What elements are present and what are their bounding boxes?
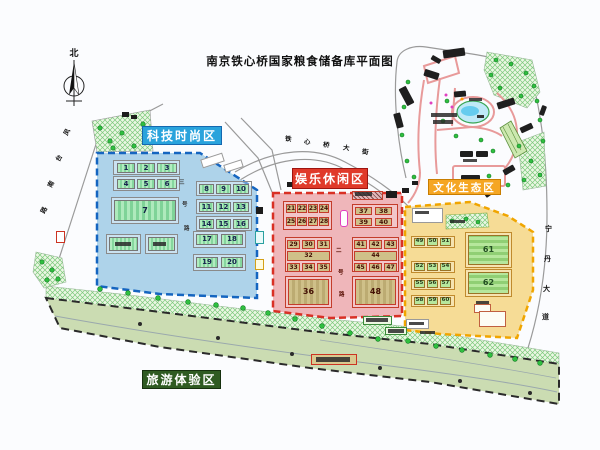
building-7: 7	[114, 200, 176, 221]
tiny-text-mark	[476, 301, 489, 304]
tiny-text-mark	[316, 357, 350, 362]
building-57: 57	[440, 280, 451, 288]
building-47: 47	[384, 263, 397, 272]
building-17: 17	[196, 234, 218, 245]
building-3: 3	[157, 163, 177, 173]
road-label-right_road: 道	[542, 314, 549, 321]
dark-mark	[402, 188, 409, 193]
zone-label-culture: 文化生态区	[428, 179, 501, 195]
building-20: 20	[221, 257, 243, 268]
compass-icon	[64, 60, 84, 106]
building-18: 18	[221, 234, 243, 245]
building-26: 26	[297, 217, 307, 226]
building-16: 16	[233, 219, 249, 229]
road-label-leisure_inner: 号	[338, 271, 344, 277]
building-61: 61	[468, 235, 509, 265]
road-label-top_street: 铁	[285, 136, 292, 143]
building-9: 9	[216, 184, 231, 194]
building-2: 2	[137, 163, 155, 173]
map-structure	[340, 210, 348, 227]
site-building	[460, 151, 473, 157]
map-structure	[255, 259, 264, 270]
pond	[457, 101, 489, 123]
building-62: 62	[468, 272, 509, 294]
tiny-text-mark	[409, 322, 424, 325]
building-54: 54	[440, 263, 451, 271]
building-53: 53	[427, 263, 438, 271]
road-label-right_road: 宁	[545, 226, 552, 233]
building-10: 10	[233, 184, 249, 194]
map-structure	[255, 231, 264, 244]
building-44: 44	[354, 251, 397, 261]
tiny-text-mark	[388, 329, 404, 333]
site-building	[476, 151, 488, 157]
building-13: 13	[233, 202, 249, 212]
zone-label-tourism: 旅游体验区	[142, 370, 221, 389]
building	[386, 191, 397, 198]
zone-label-leisure: 娱乐休闲区	[292, 168, 368, 189]
building-6: 6	[157, 179, 177, 189]
building-14: 14	[199, 219, 214, 229]
dark-mark	[412, 181, 418, 185]
building-37: 37	[355, 207, 372, 215]
tiny-text-mark	[463, 159, 477, 162]
building-55: 55	[414, 280, 425, 288]
building-19: 19	[196, 257, 218, 268]
building-15: 15	[216, 219, 231, 229]
building-41: 41	[354, 240, 367, 249]
building-30: 30	[302, 240, 315, 249]
building-11: 11	[199, 202, 214, 212]
building-33: 33	[287, 263, 300, 272]
building-22: 22	[297, 204, 307, 213]
road-label-right_road: 丹	[544, 256, 551, 263]
building-52: 52	[414, 263, 425, 271]
building-43: 43	[384, 240, 397, 249]
road-label-top_street: 心	[304, 139, 311, 146]
dark-mark	[256, 207, 263, 214]
building-56: 56	[427, 280, 438, 288]
building-4: 4	[117, 179, 135, 189]
building-51: 51	[440, 238, 451, 246]
building-46: 46	[369, 263, 382, 272]
building-28: 28	[319, 217, 329, 226]
site-building	[454, 90, 466, 97]
compass-north-label: 北	[66, 46, 82, 59]
building-38: 38	[375, 207, 392, 215]
road-label-tech_inner: 号	[182, 203, 188, 209]
building-27: 27	[308, 217, 318, 226]
building-40: 40	[375, 218, 392, 226]
road-label-tech_inner: 路	[184, 227, 190, 233]
building-60: 60	[440, 297, 451, 305]
map-title: 南京铁心桥国家粮食储备库平面图	[150, 53, 450, 69]
tiny-text-mark	[115, 242, 131, 246]
map-structure	[479, 311, 506, 327]
building-39: 39	[355, 218, 372, 226]
building-21: 21	[286, 204, 296, 213]
tiny-text-mark	[450, 220, 465, 223]
road-label-top_street: 桥	[323, 142, 330, 149]
building-8: 8	[199, 184, 214, 194]
tiny-text-mark	[366, 318, 388, 322]
road-label-leisure_inner: 路	[339, 293, 345, 299]
map-structure	[56, 231, 65, 243]
dark-mark	[122, 112, 129, 117]
building-42: 42	[369, 240, 382, 249]
tiny-text-mark	[433, 120, 453, 124]
tiny-text-mark	[420, 331, 435, 334]
building-35: 35	[317, 263, 330, 272]
road-label-leisure_inner: 二	[336, 249, 342, 255]
building-49: 49	[414, 238, 425, 246]
building-32: 32	[287, 251, 330, 261]
road-label-top_street: 街	[362, 149, 369, 156]
building-5: 5	[137, 179, 155, 189]
zone-label-tech: 科技时尚区	[142, 126, 222, 145]
building-23: 23	[308, 204, 318, 213]
building-31: 31	[317, 240, 330, 249]
road-label-top_street: 大	[343, 145, 350, 152]
building-24: 24	[319, 204, 329, 213]
building-45: 45	[354, 263, 367, 272]
building-50: 50	[427, 238, 438, 246]
building-59: 59	[427, 297, 438, 305]
building-48: 48	[355, 279, 396, 305]
building-1: 1	[117, 163, 135, 173]
tiny-text-mark	[153, 242, 166, 246]
tiny-text-mark	[355, 192, 372, 196]
dark-mark	[131, 115, 137, 119]
road-label-tech_inner: 三	[179, 181, 185, 187]
building-36: 36	[288, 279, 329, 305]
road-label-right_road: 大	[543, 286, 550, 293]
building-34: 34	[302, 263, 315, 272]
building-25: 25	[286, 217, 296, 226]
tiny-text-mark	[431, 113, 457, 117]
building-12: 12	[216, 202, 231, 212]
building-58: 58	[414, 297, 425, 305]
tiny-text-mark	[415, 211, 429, 214]
building-29: 29	[287, 240, 300, 249]
site-plan-map: 南京铁心桥国家粮食储备库平面图 北 科技时尚区 娱乐休闲区 文化生态区 旅游体验…	[0, 0, 600, 450]
tiny-text-mark	[469, 98, 482, 101]
